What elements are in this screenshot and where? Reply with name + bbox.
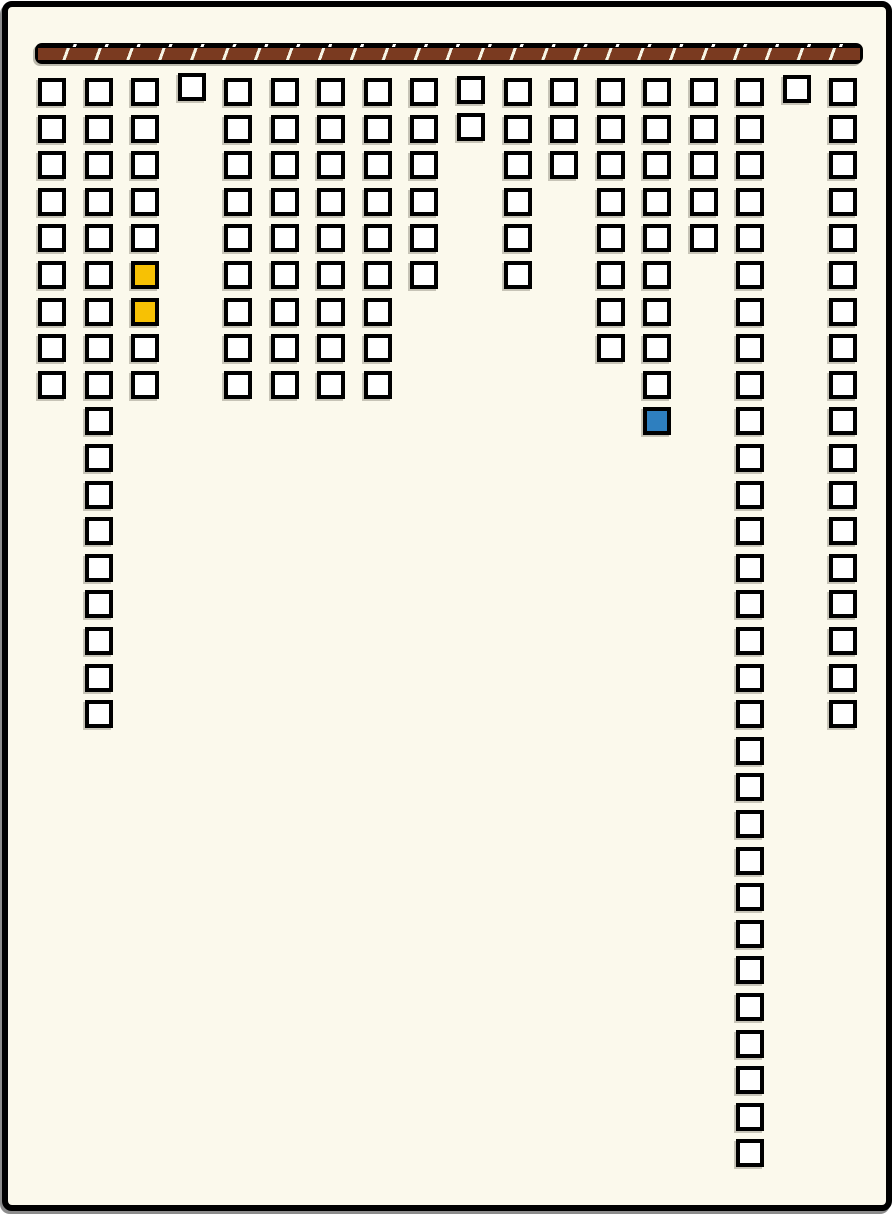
tile[interactable] — [271, 78, 299, 106]
tile[interactable] — [224, 151, 252, 179]
tile[interactable] — [38, 151, 66, 179]
tile[interactable] — [736, 1103, 764, 1131]
tile[interactable] — [85, 334, 113, 362]
tile[interactable] — [829, 224, 857, 252]
tile[interactable] — [131, 224, 159, 252]
tile[interactable] — [38, 78, 66, 106]
tile[interactable] — [410, 188, 438, 216]
tile[interactable] — [736, 847, 764, 875]
tile[interactable] — [736, 554, 764, 582]
tile[interactable] — [690, 78, 718, 106]
tile[interactable] — [736, 517, 764, 545]
tile[interactable] — [829, 664, 857, 692]
tile[interactable] — [736, 115, 764, 143]
tile[interactable] — [643, 334, 671, 362]
tile[interactable] — [457, 113, 485, 141]
tile[interactable] — [829, 700, 857, 728]
tile[interactable] — [643, 261, 671, 289]
tile[interactable] — [504, 188, 532, 216]
tile[interactable] — [38, 298, 66, 326]
tile[interactable] — [829, 371, 857, 399]
tile[interactable] — [829, 298, 857, 326]
tile[interactable] — [504, 115, 532, 143]
tile[interactable] — [829, 151, 857, 179]
tile[interactable] — [131, 115, 159, 143]
tile-board — [8, 7, 886, 1205]
tile[interactable] — [364, 334, 392, 362]
tile[interactable] — [597, 261, 625, 289]
tile[interactable] — [224, 298, 252, 326]
tile[interactable] — [38, 115, 66, 143]
tile[interactable] — [736, 298, 764, 326]
blue-tile[interactable] — [643, 407, 671, 435]
tile[interactable] — [643, 78, 671, 106]
tile[interactable] — [224, 115, 252, 143]
tile[interactable] — [131, 188, 159, 216]
tile[interactable] — [131, 151, 159, 179]
tile[interactable] — [410, 78, 438, 106]
tile[interactable] — [317, 151, 345, 179]
tile[interactable] — [131, 78, 159, 106]
tile[interactable] — [224, 188, 252, 216]
tile[interactable] — [85, 444, 113, 472]
tile[interactable] — [504, 224, 532, 252]
tile[interactable] — [364, 298, 392, 326]
tile[interactable] — [364, 371, 392, 399]
tile[interactable] — [364, 78, 392, 106]
tile[interactable] — [783, 75, 811, 103]
tile[interactable] — [736, 1139, 764, 1167]
tile[interactable] — [597, 115, 625, 143]
tile[interactable] — [38, 188, 66, 216]
tile[interactable] — [85, 481, 113, 509]
tile[interactable] — [317, 224, 345, 252]
tile[interactable] — [829, 334, 857, 362]
tile[interactable] — [85, 188, 113, 216]
tile[interactable] — [829, 261, 857, 289]
tile[interactable] — [690, 151, 718, 179]
tile[interactable] — [364, 151, 392, 179]
tile[interactable] — [736, 151, 764, 179]
tile[interactable] — [317, 334, 345, 362]
tile[interactable] — [736, 664, 764, 692]
tile[interactable] — [690, 115, 718, 143]
yellow-tile[interactable] — [131, 261, 159, 289]
tile[interactable] — [38, 334, 66, 362]
tile[interactable] — [736, 810, 764, 838]
tile[interactable] — [736, 993, 764, 1021]
yellow-tile[interactable] — [131, 298, 159, 326]
tile[interactable] — [550, 115, 578, 143]
tile[interactable] — [550, 78, 578, 106]
tile[interactable] — [736, 334, 764, 362]
tile[interactable] — [736, 1066, 764, 1094]
tile[interactable] — [643, 298, 671, 326]
tile[interactable] — [317, 261, 345, 289]
tile[interactable] — [364, 188, 392, 216]
tile[interactable] — [643, 115, 671, 143]
tile[interactable] — [271, 188, 299, 216]
tile[interactable] — [597, 188, 625, 216]
tile[interactable] — [317, 371, 345, 399]
tile[interactable] — [271, 115, 299, 143]
tile[interactable] — [504, 78, 532, 106]
tile[interactable] — [317, 115, 345, 143]
tile[interactable] — [38, 261, 66, 289]
tile[interactable] — [736, 371, 764, 399]
tile[interactable] — [829, 481, 857, 509]
tile[interactable] — [85, 371, 113, 399]
tile[interactable] — [271, 224, 299, 252]
tile[interactable] — [271, 371, 299, 399]
tile[interactable] — [271, 298, 299, 326]
tile[interactable] — [736, 188, 764, 216]
tile[interactable] — [597, 334, 625, 362]
tile[interactable] — [85, 590, 113, 618]
tile[interactable] — [550, 151, 578, 179]
tile[interactable] — [829, 517, 857, 545]
tile[interactable] — [829, 590, 857, 618]
tile[interactable] — [736, 773, 764, 801]
tile[interactable] — [829, 78, 857, 106]
tile[interactable] — [85, 224, 113, 252]
tile[interactable] — [736, 78, 764, 106]
tile[interactable] — [597, 151, 625, 179]
tile[interactable] — [317, 78, 345, 106]
tile[interactable] — [736, 956, 764, 984]
tile[interactable] — [85, 78, 113, 106]
tile[interactable] — [736, 737, 764, 765]
tile[interactable] — [736, 444, 764, 472]
tile[interactable] — [829, 444, 857, 472]
tile[interactable] — [457, 76, 485, 104]
tile[interactable] — [85, 151, 113, 179]
tile[interactable] — [85, 261, 113, 289]
tile[interactable] — [690, 188, 718, 216]
tile[interactable] — [597, 224, 625, 252]
tile[interactable] — [85, 700, 113, 728]
tile[interactable] — [643, 224, 671, 252]
tile[interactable] — [829, 407, 857, 435]
tile[interactable] — [317, 188, 345, 216]
tile[interactable] — [224, 78, 252, 106]
tile[interactable] — [85, 627, 113, 655]
tile[interactable] — [643, 188, 671, 216]
tile[interactable] — [85, 554, 113, 582]
tile[interactable] — [85, 517, 113, 545]
tile[interactable] — [364, 261, 392, 289]
page — [2, 1, 892, 1211]
tile[interactable] — [736, 627, 764, 655]
tile[interactable] — [224, 371, 252, 399]
tile[interactable] — [643, 371, 671, 399]
tile[interactable] — [829, 188, 857, 216]
tile[interactable] — [85, 298, 113, 326]
tile[interactable] — [410, 261, 438, 289]
tile[interactable] — [736, 883, 764, 911]
tile[interactable] — [364, 115, 392, 143]
tile[interactable] — [736, 1030, 764, 1058]
tile[interactable] — [736, 481, 764, 509]
tile[interactable] — [85, 664, 113, 692]
tile[interactable] — [736, 224, 764, 252]
tile[interactable] — [410, 224, 438, 252]
tile[interactable] — [829, 554, 857, 582]
tile[interactable] — [224, 261, 252, 289]
tile[interactable] — [38, 371, 66, 399]
tile[interactable] — [178, 73, 206, 101]
tile[interactable] — [364, 224, 392, 252]
tile[interactable] — [85, 407, 113, 435]
tile[interactable] — [85, 115, 113, 143]
tile[interactable] — [597, 78, 625, 106]
tile[interactable] — [271, 151, 299, 179]
tile[interactable] — [690, 224, 718, 252]
tile[interactable] — [224, 224, 252, 252]
tile[interactable] — [131, 334, 159, 362]
tile[interactable] — [317, 298, 345, 326]
tile[interactable] — [504, 261, 532, 289]
tile[interactable] — [736, 920, 764, 948]
tile[interactable] — [736, 407, 764, 435]
tile[interactable] — [271, 261, 299, 289]
tile[interactable] — [736, 700, 764, 728]
tile[interactable] — [410, 115, 438, 143]
tile[interactable] — [736, 261, 764, 289]
tile[interactable] — [504, 151, 532, 179]
tile[interactable] — [597, 298, 625, 326]
tile[interactable] — [736, 590, 764, 618]
tile[interactable] — [271, 334, 299, 362]
tile[interactable] — [643, 151, 671, 179]
tile[interactable] — [829, 115, 857, 143]
tile[interactable] — [224, 334, 252, 362]
tile[interactable] — [410, 151, 438, 179]
tile[interactable] — [131, 371, 159, 399]
tile[interactable] — [38, 224, 66, 252]
tile[interactable] — [829, 627, 857, 655]
